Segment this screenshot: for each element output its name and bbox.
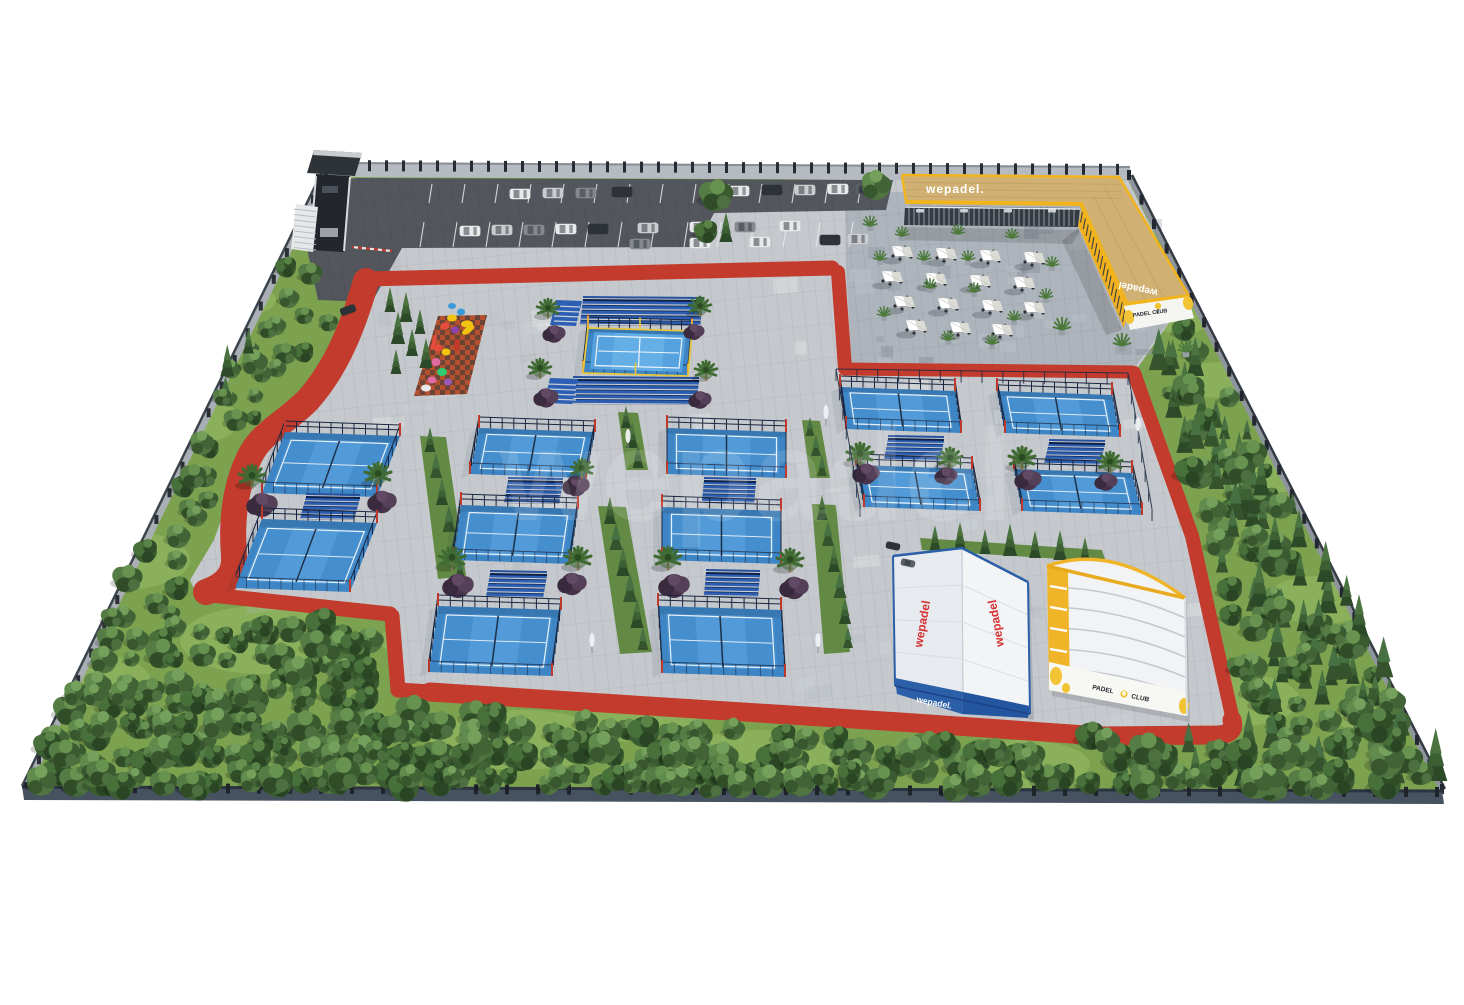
svg-text:wepadel: wepadel (499, 402, 1013, 548)
svg-text:wepadel.: wepadel. (925, 182, 985, 196)
